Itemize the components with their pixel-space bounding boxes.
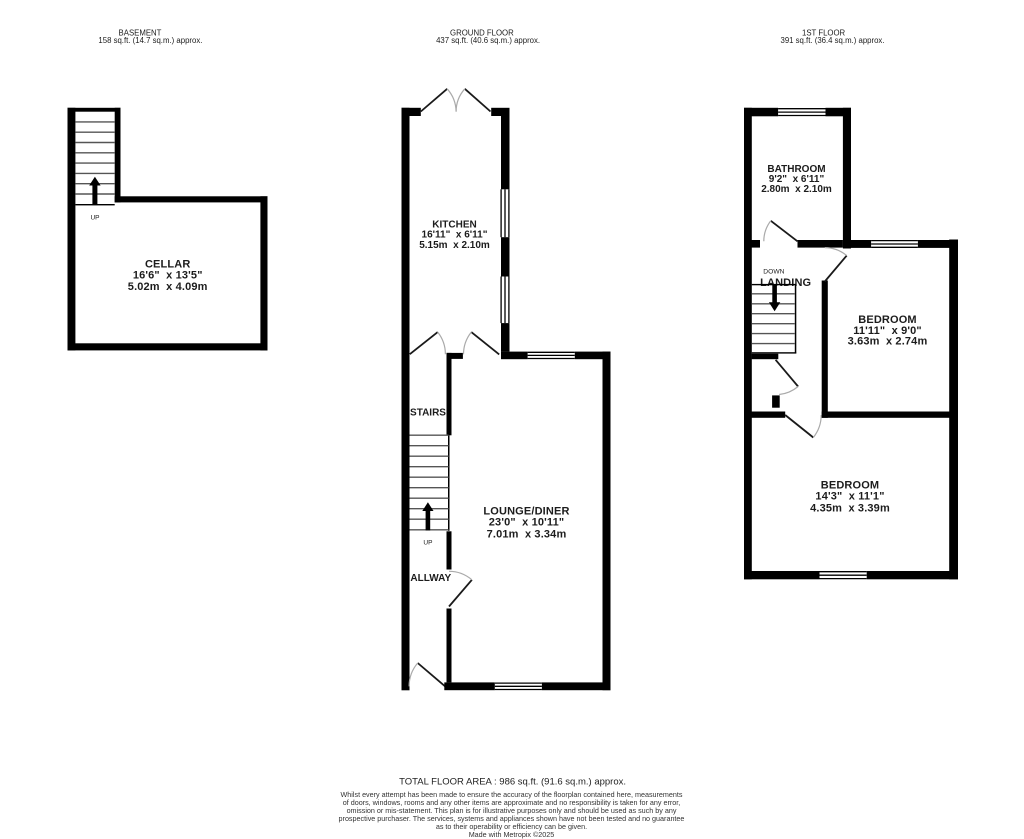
svg-text:391 sq.ft. (36.4 sq.m.) approx: 391 sq.ft. (36.4 sq.m.) approx. (780, 36, 884, 45)
svg-text:16'6" x 13'5": 16'6" x 13'5" (133, 270, 203, 282)
svg-text:5.02m x 4.09m: 5.02m x 4.09m (128, 281, 208, 293)
svg-text:7.01m x 3.34m: 7.01m x 3.34m (487, 528, 567, 540)
svg-text:LANDING: LANDING (760, 277, 811, 289)
svg-text:4.35m x 3.39m: 4.35m x 3.39m (810, 502, 890, 514)
svg-text:16'11" x 6'11": 16'11" x 6'11" (422, 229, 488, 240)
svg-text:UP: UP (90, 215, 99, 222)
svg-text:UP: UP (423, 540, 432, 547)
svg-text:3.63m x 2.74m: 3.63m x 2.74m (848, 336, 928, 348)
svg-text:DOWN: DOWN (763, 269, 784, 276)
svg-text:TOTAL FLOOR AREA : 986 sq.ft.: TOTAL FLOOR AREA : 986 sq.ft. (91.6 sq.m… (399, 777, 626, 788)
svg-text:5.15m x 2.10m: 5.15m x 2.10m (419, 240, 490, 251)
svg-text:STAIRS: STAIRS (410, 408, 446, 419)
svg-text:ALLWAY: ALLWAY (410, 573, 451, 584)
svg-text:Made with Metropix ©2025: Made with Metropix ©2025 (469, 830, 555, 839)
svg-text:158 sq.ft. (14.7 sq.m.) approx: 158 sq.ft. (14.7 sq.m.) approx. (98, 36, 202, 45)
svg-text:14'3" x 11'1": 14'3" x 11'1" (815, 491, 884, 503)
svg-text:2.80m x 2.10m: 2.80m x 2.10m (761, 184, 832, 195)
svg-text:23'0" x 10'11": 23'0" x 10'11" (489, 517, 564, 529)
svg-text:437 sq.ft. (40.6 sq.m.) approx: 437 sq.ft. (40.6 sq.m.) approx. (436, 36, 540, 45)
